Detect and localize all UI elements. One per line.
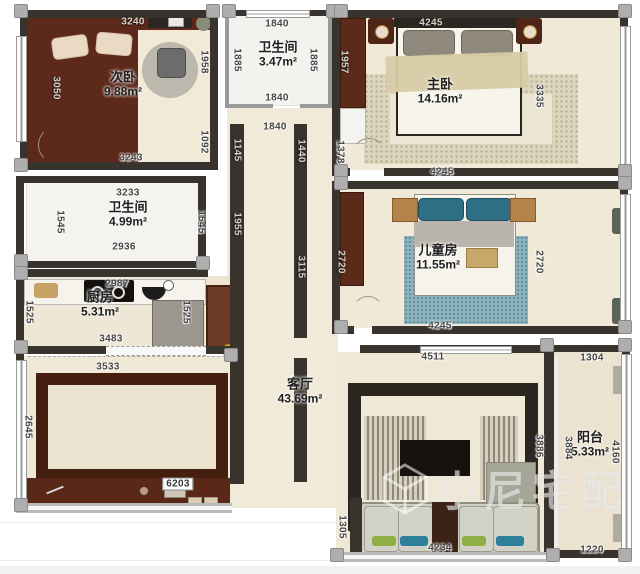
wall [384, 168, 628, 176]
room-label-living-room: 客厅43.69m² [278, 378, 323, 407]
column-marker [618, 320, 632, 334]
column-marker [196, 256, 210, 270]
wall [210, 10, 218, 124]
dimension-label: 3233 [116, 188, 139, 199]
pillow [95, 31, 133, 56]
room-label-bathroom-top: 卫生间3.47m² [258, 41, 297, 70]
sliding-door [106, 346, 206, 356]
window [16, 36, 27, 142]
dimension-label: 3050 [51, 76, 62, 99]
dimension-label: 1885 [308, 48, 319, 71]
dimension-label: 4511 [422, 352, 445, 363]
bed-box [466, 248, 498, 268]
nightstand [510, 198, 536, 222]
sofa-pillow [462, 536, 486, 546]
dimension-label: 1885 [232, 48, 243, 71]
dimension-label: 6203 [162, 478, 193, 491]
window [620, 26, 631, 172]
dimension-label: 3243 [119, 153, 142, 164]
column-marker [14, 158, 28, 172]
fridge [152, 300, 204, 348]
lamp-icon [375, 25, 389, 39]
wall [20, 10, 218, 18]
floor-plan: 小尼宅配 次卧9.88m²卫生间3.47m²主卧14.16m²卫生间4.99m²… [0, 0, 640, 574]
background-band [0, 566, 640, 574]
wall [230, 124, 244, 484]
window [621, 354, 632, 554]
sofa-pillow [400, 536, 428, 546]
column-marker [618, 4, 632, 18]
dimension-label: 1840 [265, 19, 288, 30]
dimension-label: 2720 [336, 250, 347, 273]
dashed-boundary [28, 356, 230, 357]
dimension-label: 1955 [232, 212, 243, 235]
dimension-label: 1545 [55, 210, 66, 233]
tv [400, 440, 470, 476]
background-line [0, 560, 336, 561]
dimension-label: 3240 [121, 17, 144, 28]
column-marker [334, 4, 348, 18]
wall [332, 181, 628, 189]
dimension-label: 2645 [23, 415, 34, 438]
column-marker [224, 348, 238, 362]
wall [225, 14, 229, 106]
dimension-label: 1957 [339, 50, 350, 73]
dimension-label: 4245 [419, 18, 442, 29]
wall [372, 326, 628, 334]
wall [332, 10, 628, 18]
dimension-label: 3533 [96, 362, 119, 373]
cup-icon [163, 280, 174, 291]
window [246, 10, 310, 18]
window [620, 194, 631, 324]
room-label-kitchen: 厨房5.31m² [81, 291, 119, 320]
dimension-label: 2936 [112, 242, 135, 253]
wall [20, 261, 206, 268]
dimension-label: 3115 [296, 256, 307, 279]
dimension-label: 1304 [580, 353, 603, 364]
dimension-label: 2987 [105, 279, 128, 290]
dimension-label: 1220 [580, 545, 603, 556]
window-strip [16, 503, 232, 513]
column-marker [546, 548, 560, 562]
column-marker [14, 4, 28, 18]
dimension-label: 1525 [181, 300, 192, 323]
dimension-label: 4234 [428, 543, 451, 554]
column-marker [206, 4, 220, 18]
pillow [418, 198, 464, 221]
dimension-label: 1440 [296, 139, 307, 162]
dimension-label: 3483 [99, 334, 122, 345]
dimension-label: 4160 [610, 440, 621, 463]
column-marker [618, 548, 632, 562]
column-marker [334, 176, 348, 190]
column-marker [330, 548, 344, 562]
desk-chair [157, 48, 186, 78]
room-label-bathroom-left: 卫生间4.99m² [108, 201, 147, 230]
sofa-pillow [496, 536, 524, 546]
room-label-master-bedroom: 主卧14.16m² [418, 78, 463, 107]
dimension-label: 1525 [24, 300, 35, 323]
dimension-label: 1145 [232, 139, 243, 162]
dimension-label: 1840 [263, 122, 286, 133]
room-label-children-room: 儿童房11.55m² [416, 244, 460, 273]
dimension-label: 1545 [196, 210, 207, 233]
nightstand [392, 198, 418, 222]
flower-icon [140, 487, 148, 495]
column-marker [540, 338, 554, 352]
column-marker [618, 176, 632, 190]
door-arc [38, 126, 76, 164]
wall [544, 345, 554, 560]
room-label-balcony: 阳台5.33m² [571, 431, 609, 460]
pillow [403, 30, 455, 56]
lamp-icon [523, 25, 537, 39]
wall [554, 345, 628, 352]
dimension-label: 3886 [534, 434, 545, 457]
wall [225, 104, 273, 108]
column-marker [222, 4, 236, 18]
dimension-label: 1840 [265, 93, 288, 104]
dimension-label: 1958 [199, 50, 210, 73]
wall [16, 269, 208, 277]
window-strip [336, 552, 546, 562]
wall [20, 176, 206, 183]
pillow [466, 198, 512, 221]
column-marker [14, 266, 28, 280]
dimension-label: 1305 [337, 515, 348, 538]
dining-rug [36, 373, 228, 481]
column-marker [334, 320, 348, 334]
door-arc [352, 138, 386, 172]
column-marker [14, 498, 28, 512]
dimension-label: 4245 [430, 167, 453, 178]
room-label-secondary-bedroom: 次卧9.88m² [104, 71, 142, 100]
dimension-label: 3884 [563, 436, 574, 459]
wall [300, 104, 332, 108]
plant-icon [196, 16, 211, 31]
column-marker [618, 338, 632, 352]
wall [350, 498, 362, 558]
sofa-pillow [372, 536, 396, 546]
dimension-label: 2720 [534, 250, 545, 273]
column-marker [14, 340, 28, 354]
wall [16, 346, 108, 354]
door-arc [352, 296, 384, 328]
background-line [0, 522, 336, 523]
dimension-label: 4245 [428, 321, 451, 332]
wall [210, 124, 218, 170]
dimension-label: 1092 [199, 130, 210, 153]
dimension-label: 1378 [335, 140, 346, 163]
dimension-label: 3335 [534, 84, 545, 107]
cutting-board-icon [34, 283, 58, 298]
